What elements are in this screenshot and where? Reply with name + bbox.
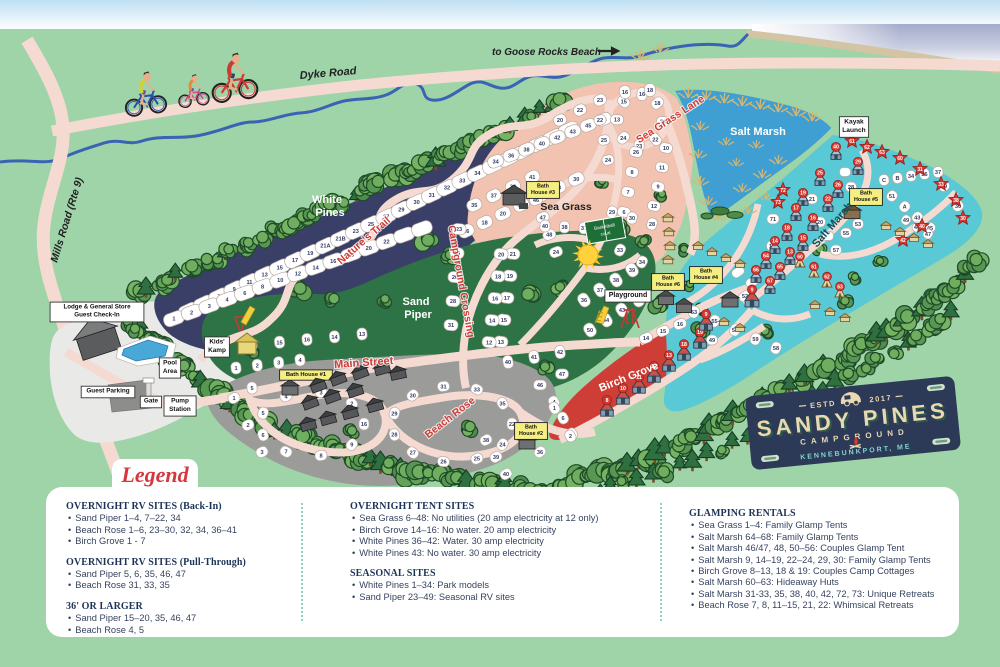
svg-text:12: 12 xyxy=(651,204,657,210)
svg-text:71: 71 xyxy=(770,217,776,223)
svg-text:40: 40 xyxy=(542,224,548,230)
svg-text:67: 67 xyxy=(767,279,773,285)
svg-text:13: 13 xyxy=(498,340,504,346)
svg-text:62: 62 xyxy=(824,274,830,280)
svg-text:20: 20 xyxy=(498,252,504,258)
svg-text:Bath: Bath xyxy=(662,275,674,281)
svg-text:15: 15 xyxy=(660,329,666,335)
svg-text:37: 37 xyxy=(491,194,497,200)
svg-text:62: 62 xyxy=(864,145,870,151)
svg-text:59: 59 xyxy=(752,337,758,343)
svg-text:49: 49 xyxy=(903,218,909,224)
svg-text:10: 10 xyxy=(663,146,669,152)
svg-text:14: 14 xyxy=(489,318,496,324)
svg-text:17: 17 xyxy=(292,258,298,264)
svg-text:5: 5 xyxy=(250,386,253,392)
svg-text:Pines: Pines xyxy=(315,207,344,219)
svg-text:30: 30 xyxy=(629,216,635,222)
svg-text:30: 30 xyxy=(960,216,966,222)
svg-text:39: 39 xyxy=(493,455,499,461)
svg-text:34: 34 xyxy=(474,171,481,177)
svg-text:Bath: Bath xyxy=(700,268,712,274)
svg-text:White: White xyxy=(312,194,342,206)
svg-text:66: 66 xyxy=(753,268,759,274)
svg-text:24: 24 xyxy=(499,443,506,449)
svg-text:29: 29 xyxy=(391,411,397,417)
svg-text:11: 11 xyxy=(659,165,665,171)
svg-text:16: 16 xyxy=(810,216,816,222)
svg-text:23: 23 xyxy=(597,98,603,104)
svg-text:53: 53 xyxy=(855,222,861,228)
svg-text:18: 18 xyxy=(654,101,660,107)
svg-text:6: 6 xyxy=(243,291,246,297)
svg-text:35: 35 xyxy=(471,203,477,209)
svg-text:36: 36 xyxy=(581,298,587,304)
svg-text:30: 30 xyxy=(573,177,579,183)
svg-text:2: 2 xyxy=(569,434,572,440)
svg-text:24: 24 xyxy=(620,136,627,142)
svg-text:38: 38 xyxy=(613,278,619,284)
svg-text:43: 43 xyxy=(570,129,576,135)
svg-text:26: 26 xyxy=(835,183,841,189)
svg-text:9: 9 xyxy=(705,312,708,318)
svg-text:33: 33 xyxy=(474,387,480,393)
svg-text:31: 31 xyxy=(448,323,454,329)
svg-text:Playground: Playground xyxy=(609,292,648,299)
svg-text:Gate: Gate xyxy=(144,398,159,405)
svg-text:9: 9 xyxy=(350,443,353,449)
svg-text:15: 15 xyxy=(277,265,283,271)
svg-text:Area: Area xyxy=(163,368,178,375)
svg-text:22: 22 xyxy=(597,118,603,124)
svg-text:61: 61 xyxy=(849,139,855,145)
svg-text:21B: 21B xyxy=(335,236,345,242)
svg-text:36: 36 xyxy=(508,153,514,159)
svg-text:1: 1 xyxy=(232,396,235,402)
svg-text:14: 14 xyxy=(331,335,338,341)
svg-text:40: 40 xyxy=(833,145,839,151)
svg-text:14: 14 xyxy=(643,336,650,342)
svg-text:Kayak: Kayak xyxy=(844,118,864,125)
svg-text:17: 17 xyxy=(793,206,799,212)
svg-text:65: 65 xyxy=(777,265,783,271)
svg-text:24: 24 xyxy=(553,250,560,256)
svg-text:5: 5 xyxy=(262,411,265,417)
svg-text:16: 16 xyxy=(330,259,336,265)
svg-text:41: 41 xyxy=(529,175,535,181)
svg-text:22: 22 xyxy=(652,137,658,143)
svg-text:C: C xyxy=(882,178,886,184)
svg-text:24: 24 xyxy=(605,158,612,164)
svg-text:Bath: Bath xyxy=(537,183,549,189)
svg-text:Salt Marsh: Salt Marsh xyxy=(730,126,786,138)
svg-text:28: 28 xyxy=(450,299,456,305)
svg-text:18: 18 xyxy=(681,342,687,348)
svg-text:30: 30 xyxy=(410,393,416,399)
svg-text:19: 19 xyxy=(697,330,703,336)
svg-text:37: 37 xyxy=(597,288,603,294)
svg-text:40: 40 xyxy=(539,141,545,147)
svg-text:18: 18 xyxy=(495,274,501,280)
svg-text:21: 21 xyxy=(809,197,815,203)
svg-text:1: 1 xyxy=(553,406,556,412)
svg-text:9: 9 xyxy=(751,287,754,293)
svg-text:3: 3 xyxy=(260,450,263,456)
svg-text:29: 29 xyxy=(609,210,615,216)
svg-text:60: 60 xyxy=(797,254,803,260)
svg-text:6: 6 xyxy=(262,433,265,439)
svg-text:29: 29 xyxy=(398,207,404,213)
svg-text:25: 25 xyxy=(817,171,823,177)
svg-text:2: 2 xyxy=(246,423,249,429)
svg-text:45: 45 xyxy=(585,123,591,129)
svg-text:13: 13 xyxy=(666,353,672,359)
svg-text:13: 13 xyxy=(261,273,267,279)
svg-text:38: 38 xyxy=(523,147,529,153)
svg-text:33: 33 xyxy=(459,178,465,184)
svg-text:38: 38 xyxy=(483,438,489,444)
svg-text:6: 6 xyxy=(561,416,564,422)
svg-text:House #4: House #4 xyxy=(694,275,718,281)
svg-text:42: 42 xyxy=(554,135,560,141)
svg-text:Launch: Launch xyxy=(842,127,865,134)
svg-text:28: 28 xyxy=(391,433,397,439)
svg-text:16: 16 xyxy=(361,422,367,428)
svg-text:8: 8 xyxy=(630,170,633,176)
svg-text:63: 63 xyxy=(837,284,843,290)
svg-text:13: 13 xyxy=(614,118,620,124)
svg-text:26: 26 xyxy=(440,460,446,466)
svg-text:15: 15 xyxy=(800,236,806,242)
svg-text:40: 40 xyxy=(919,224,925,230)
svg-text:72: 72 xyxy=(780,188,786,194)
svg-text:46: 46 xyxy=(537,383,543,389)
svg-text:Pump: Pump xyxy=(171,397,189,404)
svg-text:50: 50 xyxy=(587,328,593,334)
svg-text:31: 31 xyxy=(429,193,435,199)
svg-text:Guest Check-In: Guest Check-In xyxy=(74,312,120,319)
svg-text:15: 15 xyxy=(621,100,627,106)
svg-text:47: 47 xyxy=(559,372,565,378)
svg-text:13: 13 xyxy=(359,332,365,338)
svg-text:House #6: House #6 xyxy=(656,282,680,288)
svg-text:8: 8 xyxy=(606,398,609,404)
svg-text:14: 14 xyxy=(312,265,319,271)
svg-text:23: 23 xyxy=(353,229,359,235)
svg-text:7: 7 xyxy=(284,450,287,456)
svg-text:B: B xyxy=(895,176,899,182)
svg-text:33: 33 xyxy=(617,248,623,254)
svg-text:7: 7 xyxy=(626,190,629,196)
svg-text:38: 38 xyxy=(953,198,959,204)
svg-text:40: 40 xyxy=(505,360,511,366)
svg-text:48: 48 xyxy=(546,233,552,239)
svg-text:57: 57 xyxy=(833,248,839,254)
svg-text:House #3: House #3 xyxy=(531,190,555,196)
svg-text:37: 37 xyxy=(935,170,941,176)
svg-text:13: 13 xyxy=(787,250,793,256)
svg-text:15: 15 xyxy=(276,340,282,346)
svg-text:House #2: House #2 xyxy=(519,431,543,437)
svg-text:42: 42 xyxy=(900,238,906,244)
svg-text:8: 8 xyxy=(261,285,264,291)
svg-text:16: 16 xyxy=(677,322,683,328)
svg-text:34: 34 xyxy=(908,174,915,180)
svg-text:10: 10 xyxy=(277,278,283,284)
svg-text:43: 43 xyxy=(914,215,920,221)
svg-text:64: 64 xyxy=(763,254,769,260)
svg-text:58: 58 xyxy=(773,346,779,352)
svg-text:3: 3 xyxy=(208,304,211,310)
svg-text:36: 36 xyxy=(537,450,543,456)
svg-text:16: 16 xyxy=(492,296,498,302)
svg-text:22: 22 xyxy=(825,197,831,203)
svg-text:73: 73 xyxy=(775,200,781,206)
svg-text:35: 35 xyxy=(499,402,505,408)
svg-text:31: 31 xyxy=(440,384,446,390)
svg-text:30: 30 xyxy=(413,200,419,206)
svg-text:16: 16 xyxy=(639,92,645,98)
svg-text:12: 12 xyxy=(486,340,492,346)
svg-text:Kamp: Kamp xyxy=(208,347,226,354)
svg-text:20: 20 xyxy=(557,118,563,124)
svg-text:38: 38 xyxy=(561,225,567,231)
svg-text:42: 42 xyxy=(557,350,563,356)
svg-text:Bath: Bath xyxy=(525,424,537,430)
svg-text:A: A xyxy=(903,205,907,211)
svg-text:22: 22 xyxy=(383,240,389,246)
svg-text:House #5: House #5 xyxy=(854,197,878,203)
svg-text:2: 2 xyxy=(190,310,193,316)
svg-text:Kids': Kids' xyxy=(209,338,225,345)
svg-text:18: 18 xyxy=(647,88,653,94)
svg-text:Bath House #1: Bath House #1 xyxy=(286,372,327,378)
svg-text:27: 27 xyxy=(410,451,416,457)
svg-text:Pool: Pool xyxy=(163,359,177,366)
svg-text:19: 19 xyxy=(800,191,806,197)
svg-text:20: 20 xyxy=(366,246,372,252)
svg-text:18: 18 xyxy=(481,220,487,226)
svg-text:12: 12 xyxy=(295,272,301,278)
svg-text:61: 61 xyxy=(811,264,817,270)
svg-text:43: 43 xyxy=(619,308,625,314)
svg-text:18: 18 xyxy=(784,226,790,232)
svg-text:17: 17 xyxy=(504,296,510,302)
svg-text:16: 16 xyxy=(622,90,628,96)
svg-text:21: 21 xyxy=(510,252,516,258)
svg-text:47: 47 xyxy=(925,232,931,238)
svg-text:63: 63 xyxy=(879,150,885,156)
svg-text:26: 26 xyxy=(633,150,639,156)
svg-text:8: 8 xyxy=(319,454,322,460)
svg-text:3: 3 xyxy=(277,361,280,367)
svg-text:46: 46 xyxy=(533,198,539,204)
svg-text:14: 14 xyxy=(772,239,778,245)
svg-text:29: 29 xyxy=(855,160,861,166)
svg-text:19: 19 xyxy=(307,251,313,257)
svg-text:51: 51 xyxy=(889,194,895,200)
svg-text:60: 60 xyxy=(897,156,903,162)
svg-text:49: 49 xyxy=(709,338,715,344)
svg-text:9: 9 xyxy=(656,185,659,191)
svg-text:6: 6 xyxy=(622,210,625,216)
svg-text:16: 16 xyxy=(304,338,310,344)
svg-text:33: 33 xyxy=(938,182,944,188)
svg-text:Guest Parking: Guest Parking xyxy=(86,388,129,395)
svg-text:15: 15 xyxy=(501,318,507,324)
svg-text:1: 1 xyxy=(234,366,237,372)
svg-text:28: 28 xyxy=(649,222,655,228)
svg-text:22: 22 xyxy=(577,108,583,114)
svg-text:25: 25 xyxy=(474,457,480,463)
svg-text:19: 19 xyxy=(507,274,513,280)
svg-text:Sand: Sand xyxy=(403,296,430,308)
svg-text:39: 39 xyxy=(629,268,635,274)
svg-text:21A: 21A xyxy=(320,244,330,250)
svg-text:20: 20 xyxy=(500,212,506,218)
svg-text:1: 1 xyxy=(172,317,175,323)
svg-text:55: 55 xyxy=(843,231,849,237)
svg-text:34: 34 xyxy=(639,260,646,266)
svg-text:2: 2 xyxy=(256,363,259,369)
svg-text:34: 34 xyxy=(492,159,499,165)
svg-text:Piper: Piper xyxy=(404,309,432,321)
svg-text:Lodge & General Store: Lodge & General Store xyxy=(63,303,131,310)
svg-text:Station: Station xyxy=(169,406,191,413)
svg-text:40: 40 xyxy=(503,472,509,478)
svg-text:10: 10 xyxy=(620,386,626,392)
svg-text:Sea Grass: Sea Grass xyxy=(540,201,592,213)
svg-text:41: 41 xyxy=(531,355,537,361)
svg-text:3: 3 xyxy=(319,391,322,397)
svg-text:32: 32 xyxy=(444,186,450,192)
svg-text:31: 31 xyxy=(917,167,923,173)
svg-text:to Goose Rocks Beach: to Goose Rocks Beach xyxy=(492,47,601,58)
svg-text:25: 25 xyxy=(601,138,607,144)
svg-text:Bath: Bath xyxy=(860,190,872,196)
